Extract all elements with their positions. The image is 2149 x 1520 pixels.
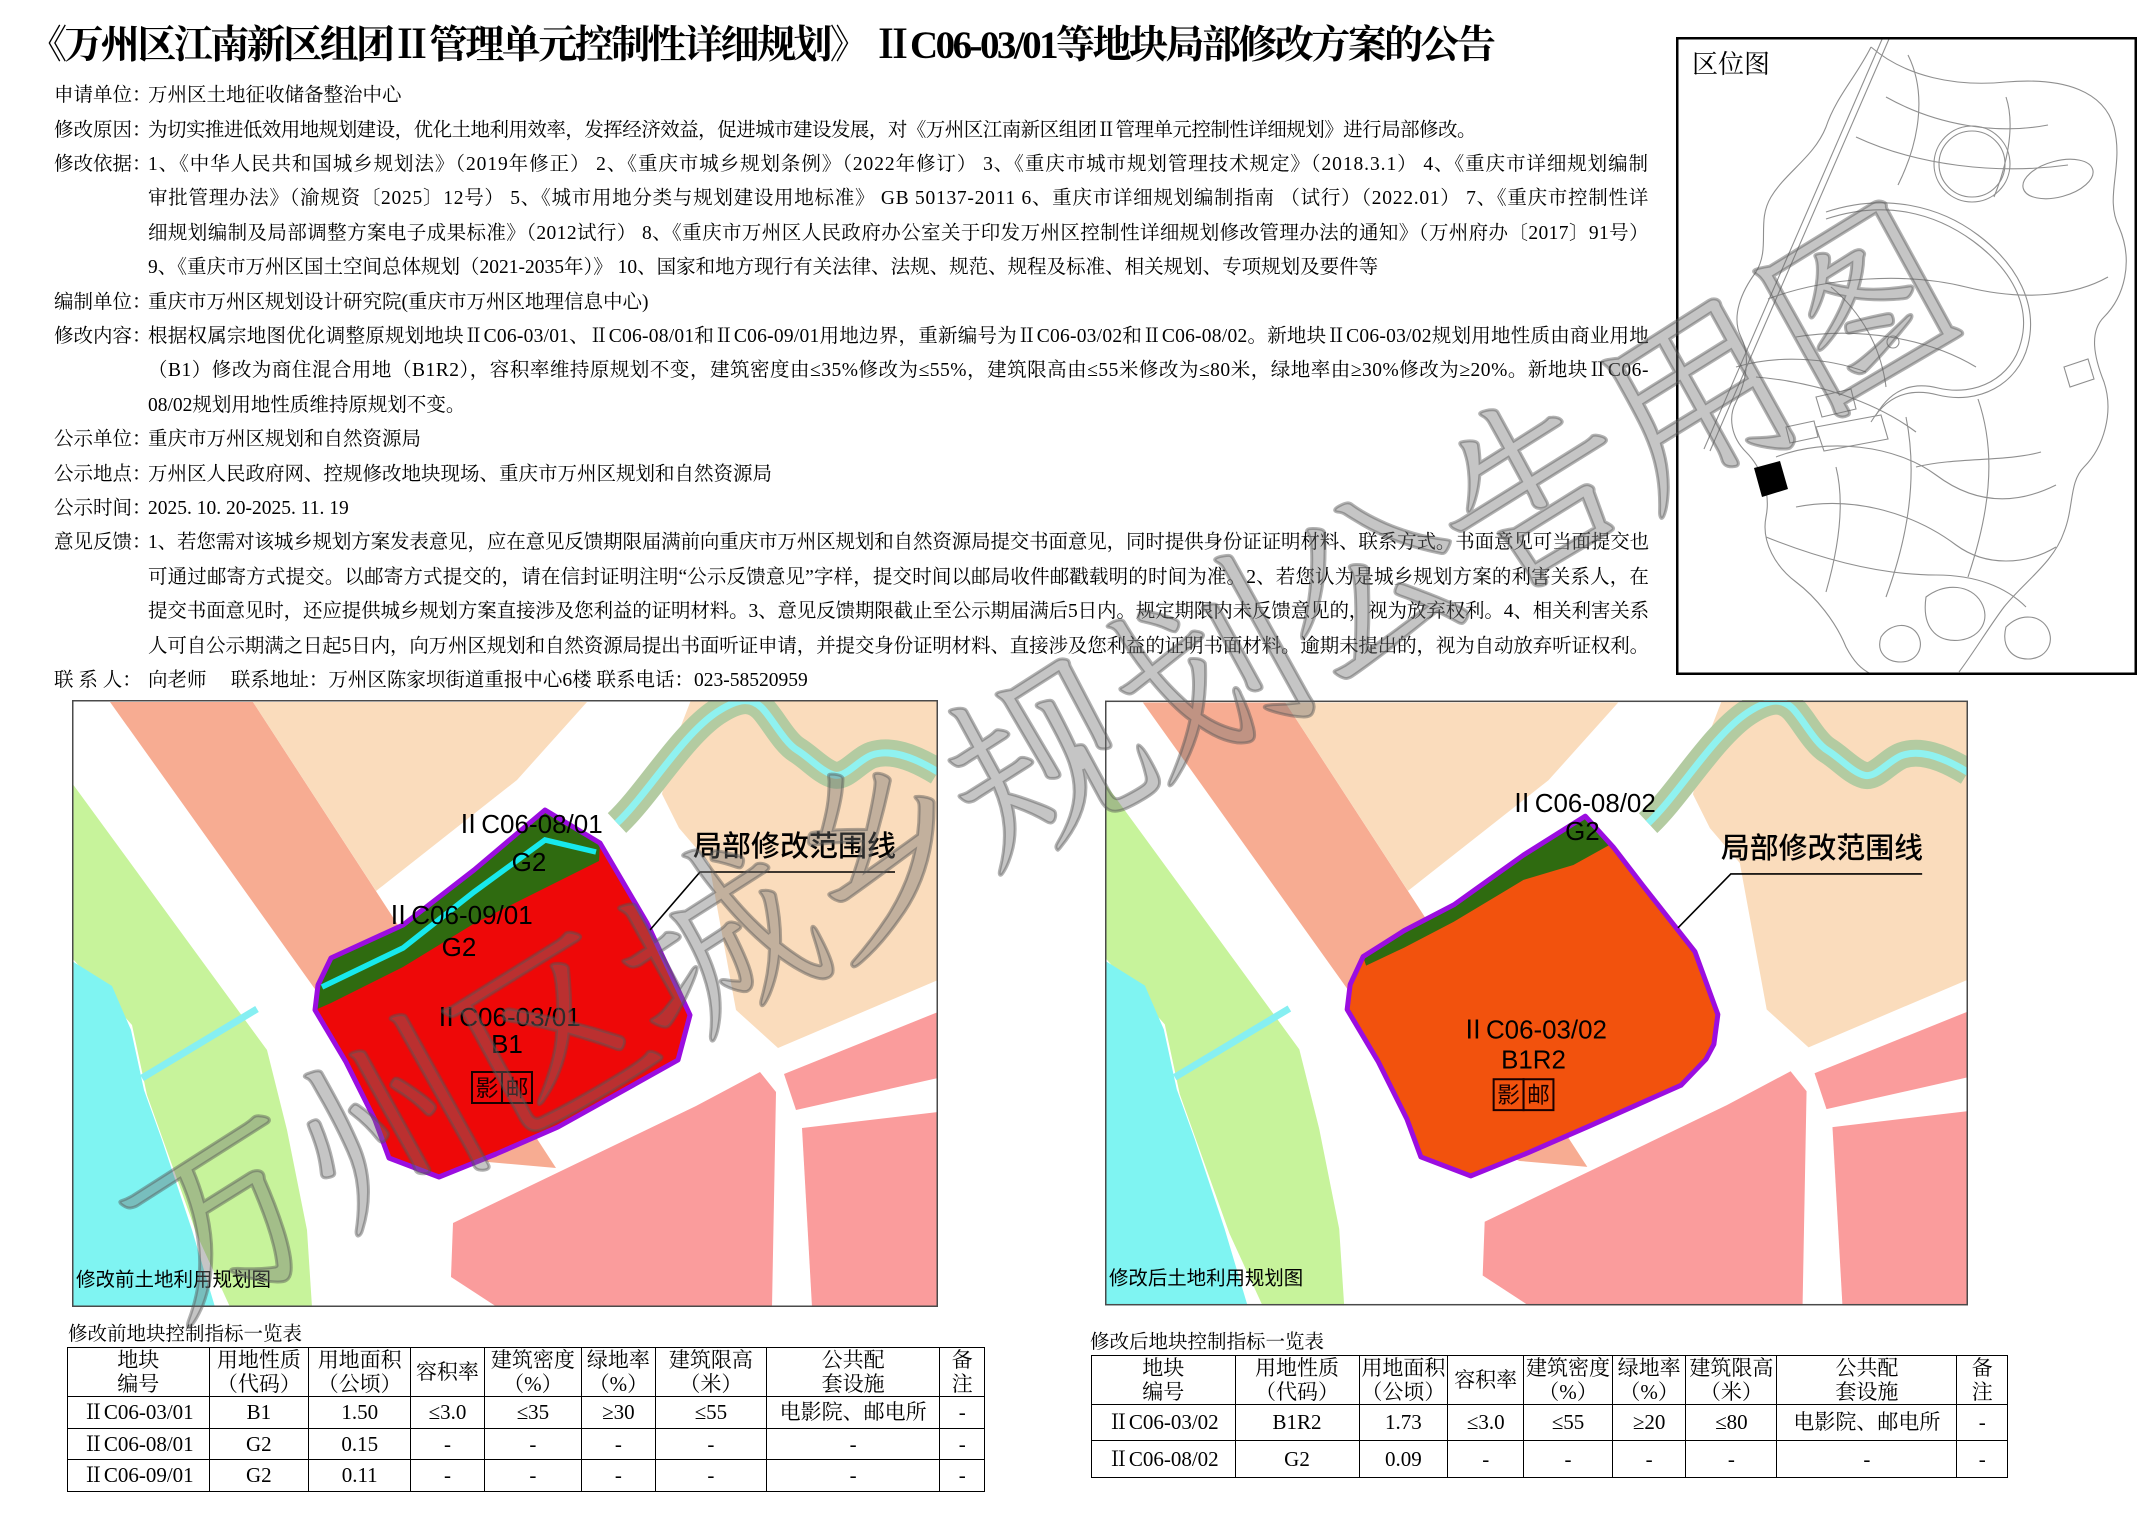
svg-text:区位图: 区位图 bbox=[1692, 50, 1770, 79]
svg-text:影: 影 bbox=[1497, 1082, 1520, 1108]
svg-text:修改前土地利用规划图: 修改前土地利用规划图 bbox=[76, 1269, 271, 1291]
svg-text:邮: 邮 bbox=[506, 1075, 529, 1101]
svg-text:ⅡC06-08/01: ⅡC06-08/01 bbox=[455, 809, 602, 839]
svg-text:ⅡC06-09/01: ⅡC06-09/01 bbox=[385, 900, 532, 930]
svg-text:ⅡC06-03/01: ⅡC06-03/01 bbox=[433, 1002, 580, 1032]
svg-text:邮: 邮 bbox=[1527, 1082, 1550, 1108]
svg-text:G2: G2 bbox=[1565, 818, 1600, 846]
svg-text:ⅡC06-03/02: ⅡC06-03/02 bbox=[1460, 1016, 1607, 1044]
svg-text:B1: B1 bbox=[491, 1029, 523, 1059]
svg-text:B1R2: B1R2 bbox=[1501, 1046, 1566, 1074]
svg-text:修改后土地利用规划图: 修改后土地利用规划图 bbox=[1109, 1268, 1303, 1290]
svg-text:影: 影 bbox=[476, 1075, 499, 1101]
svg-text:G2: G2 bbox=[512, 847, 547, 877]
svg-text:G2: G2 bbox=[442, 932, 477, 962]
svg-text:局部修改范围线: 局部修改范围线 bbox=[1721, 833, 1923, 865]
svg-text:ⅡC06-08/02: ⅡC06-08/02 bbox=[1509, 790, 1656, 818]
svg-text:局部修改范围线: 局部修改范围线 bbox=[693, 830, 896, 863]
